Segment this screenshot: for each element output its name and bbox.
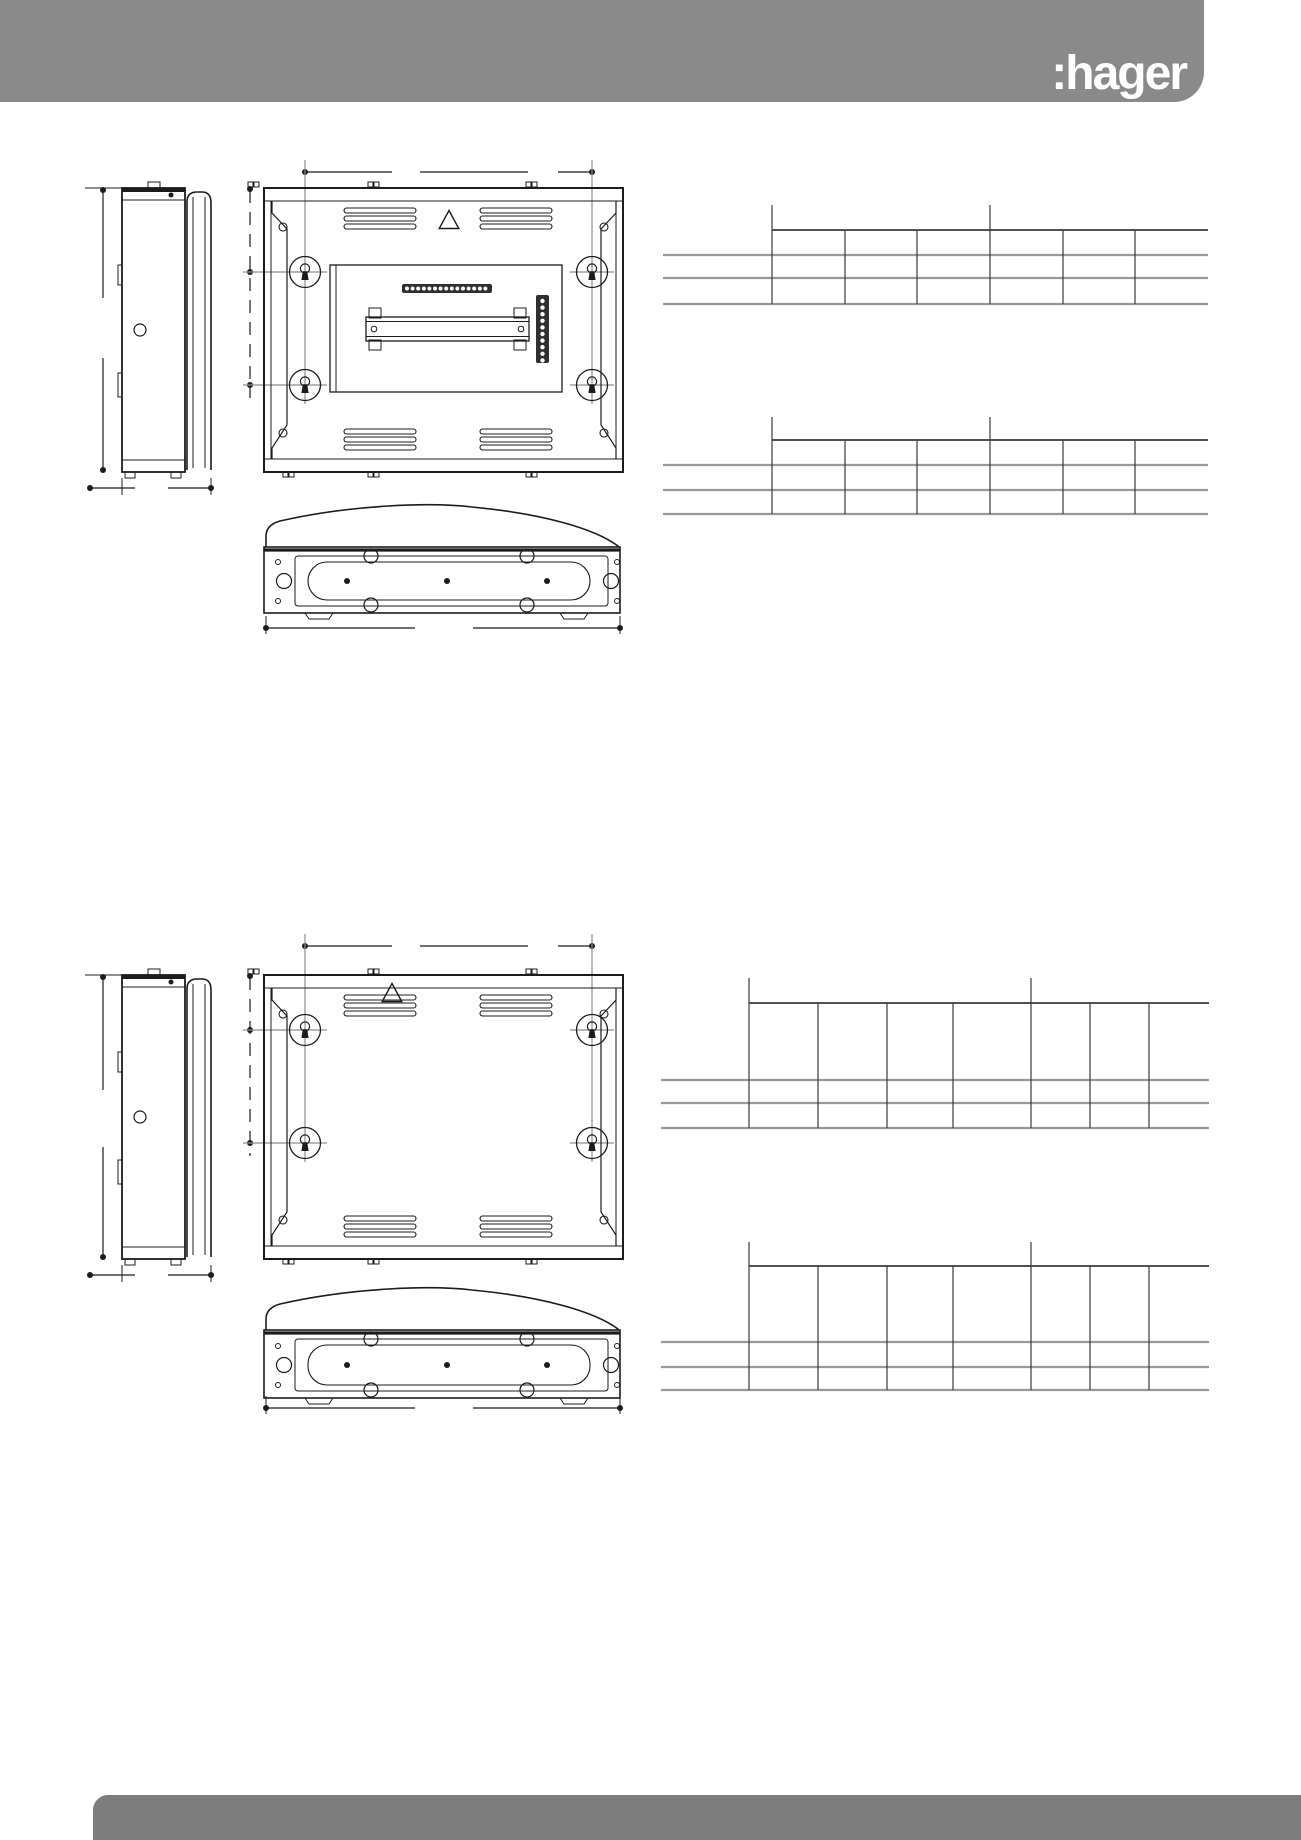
dimension-table-3	[661, 978, 1209, 1128]
bottom-view-enclosure-1	[263, 505, 623, 634]
warning-triangle-icon	[439, 211, 459, 229]
dimension-table-2	[663, 417, 1208, 514]
warning-triangle-icon	[382, 984, 402, 1002]
technical-drawing-canvas	[0, 0, 1301, 1840]
side-view-enclosure-1	[85, 182, 214, 495]
dimension-table-1	[663, 205, 1208, 304]
bottom-view-enclosure-2	[263, 1288, 623, 1414]
dimension-table-4	[661, 1242, 1209, 1390]
side-view-enclosure-2	[85, 969, 214, 1282]
front-view-enclosure-1	[243, 160, 623, 477]
footer-bar	[93, 1795, 1301, 1840]
front-view-enclosure-2	[243, 934, 623, 1264]
